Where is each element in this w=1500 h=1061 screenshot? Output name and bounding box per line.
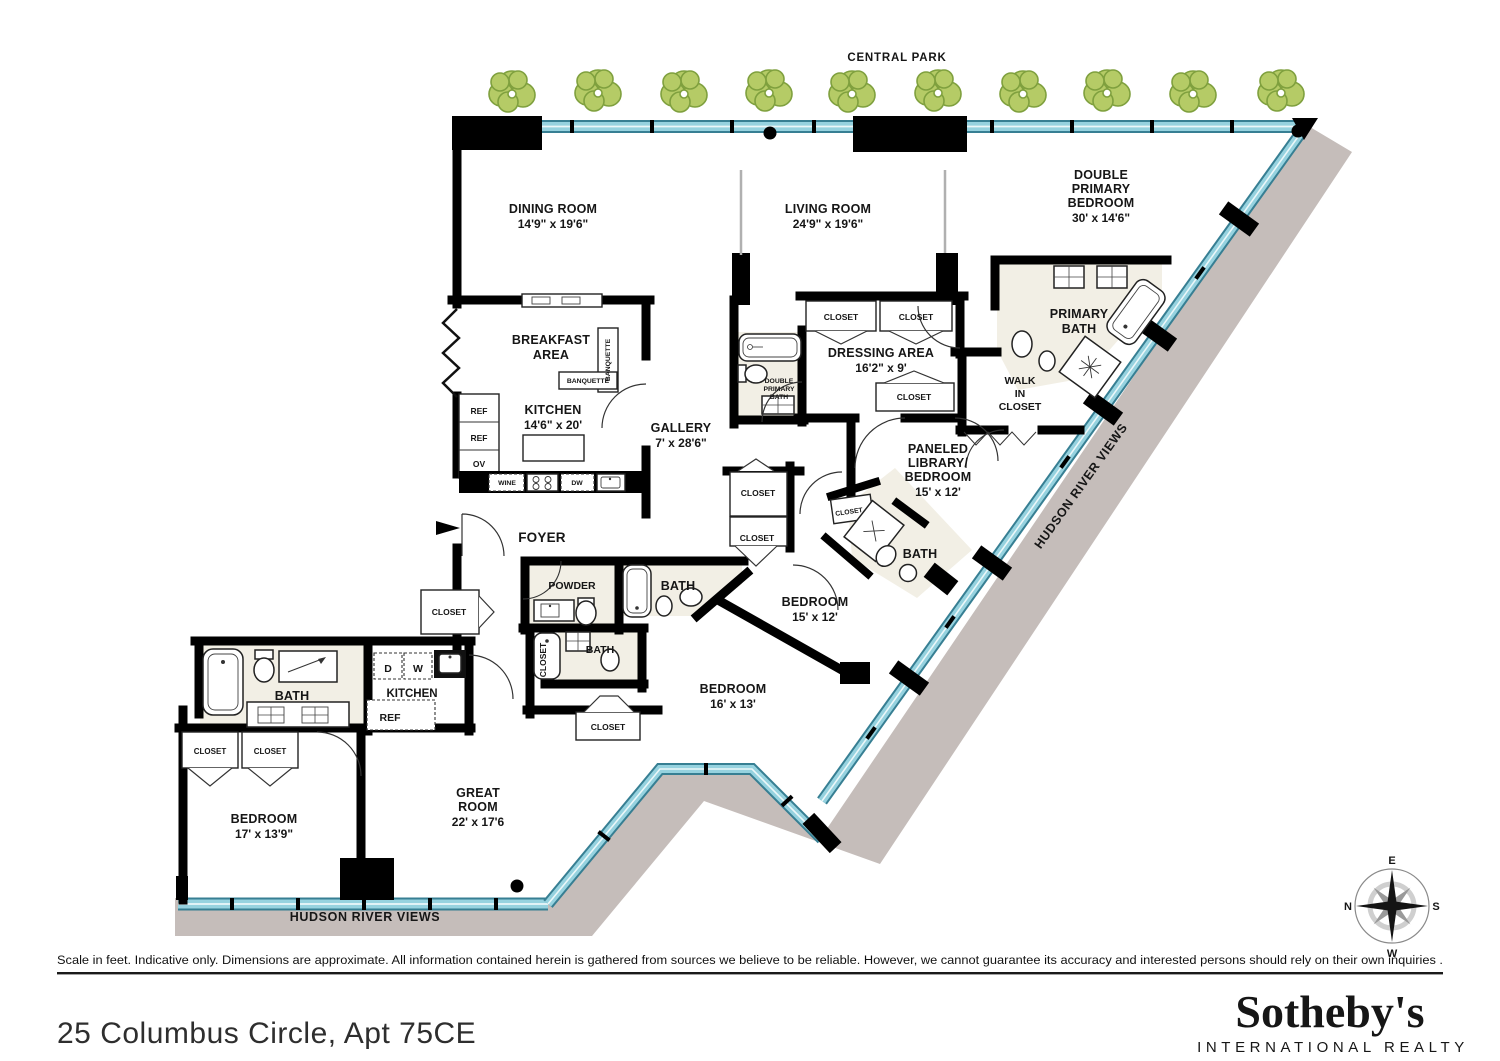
tree-icon [489,71,535,112]
console-icon [522,294,602,307]
label-bedroom-16-dims: 16' x 13' [710,697,756,711]
tree-icon [915,70,961,111]
label-banquette: BANQUETTE [567,378,610,385]
tree-icon [661,71,707,112]
label-gallery: GALLERY [651,421,712,435]
label-primary-bath: BATH [1062,322,1097,336]
door-arc [462,514,504,556]
tree-icon [1170,71,1216,112]
tree-row [489,70,1304,112]
label-walk-in-closet: CLOSET [999,401,1042,413]
bidet-icon [1039,351,1055,371]
brand-subtitle: INTERNATIONAL REALTY [1197,1039,1469,1056]
refrigerator-box [367,700,435,730]
label-closet: CLOSET [741,488,776,498]
label-banquette: BANQUETTE [605,338,612,381]
label-closet: CLOSET [254,747,287,756]
label-dressing-dims: 16'2" x 9' [855,361,907,375]
sink-icon [434,650,466,678]
label-closet: CLOSET [897,392,932,402]
label-bath: BATH [661,579,696,593]
label-central-park: CENTRAL PARK [847,52,946,64]
label-kitchen-dims: 14'6" x 20' [524,418,582,432]
door-arc [855,418,905,468]
label-bedroom-17-dims: 17' x 13'9" [235,827,293,841]
closet-door [738,459,774,471]
compass-s: S [1432,901,1439,913]
label-closet: CLOSET [591,722,626,732]
label-dining-room: DINING ROOM [509,202,597,216]
label-living-dims: 24'9" x 19'6" [793,217,863,231]
column-dot [764,127,777,140]
label-breakfast-area: AREA [533,348,569,362]
door-arc [469,655,513,699]
label-bedroom-15: BEDROOM [782,595,849,609]
tree-icon [829,71,875,112]
column-dot [511,880,524,893]
kitchen-counter [459,471,649,493]
label-closet: CLOSET [740,533,775,543]
tree-icon [575,70,621,111]
toilet-icon [738,365,767,383]
toilet-icon [576,598,596,625]
compass-n: N [1344,901,1352,913]
bathtub-icon [623,565,651,617]
label-dining-dims: 14'9" x 19'6" [518,217,588,231]
label-closet: CLOSET [432,607,467,617]
kitchen-island [523,435,584,461]
label-powder: POWDER [548,580,596,592]
column-dot [1292,125,1305,138]
disclaimer-text: Scale in feet. Indicative only. Dimensio… [57,953,1443,967]
label-walk-in-closet: WALK [1005,375,1036,387]
label-walk-in-closet: IN [1015,388,1026,400]
label-wine: WINE [498,480,516,487]
label-double-primary-bath: DOUBLE [765,378,794,385]
label-great-room: GREAT [456,786,500,800]
label-paneled-library-dims: 15' x 12' [915,485,961,499]
label-great-room-dims: 22' x 17'6 [452,815,505,829]
label-w: W [413,663,423,675]
closet-door [248,768,292,786]
label-bath: BATH [903,547,938,561]
closet-door [815,331,867,344]
label-foyer: FOYER [518,530,566,545]
label-primary-bath: PRIMARY [1050,307,1109,321]
closet-door [188,768,232,786]
sink-icon [900,565,917,582]
label-bath: BATH [275,689,310,703]
label-dw: DW [571,480,583,487]
label-double-primary-bedroom: DOUBLE [1074,168,1128,182]
brand-logo: Sotheby's INTERNATIONAL REALTY [1197,986,1469,1056]
door-arc [317,732,361,776]
label-double-primary-bedroom: PRIMARY [1072,182,1131,196]
label-great-room: ROOM [458,800,498,814]
tree-icon [1000,71,1046,112]
brand-name: Sotheby's [1235,986,1424,1037]
label-closet: CLOSET [194,747,227,756]
label-paneled-library: BEDROOM [905,470,972,484]
label-dressing-area: DRESSING AREA [828,346,934,360]
label-gallery-dims: 7' x 28'6" [655,436,706,450]
compass-icon: E S W N [1344,855,1440,960]
label-hudson-river-views: HUDSON RIVER VIEWS [290,910,440,924]
label-bath: BATH [586,644,614,656]
label-bedroom-17: BEDROOM [231,812,298,826]
label-bedroom-15-dims: 15' x 12' [792,610,838,624]
entry-arrow-icon [436,521,460,535]
footer: Scale in feet. Indicative only. Dimensio… [57,953,1469,1056]
label-paneled-library: PANELED [908,442,968,456]
page-title: 25 Columbus Circle, Apt 75CE [57,1017,476,1050]
label-closet: CLOSET [899,312,934,322]
vanity-sink [534,600,574,621]
double-vanity [247,702,349,727]
label-kitchen: KITCHEN [525,403,582,417]
label-breakfast-area: BREAKFAST [512,333,590,347]
closet-door [584,696,634,712]
bathtub-icon [739,334,801,361]
label-paneled-library: LIBRARY/ [908,456,968,470]
shower-icon [279,651,337,682]
label-ref: REF [471,406,488,416]
label-bedroom-16: BEDROOM [700,682,767,696]
label-ref: REF [380,712,402,724]
label-ref: REF [471,433,488,443]
label-double-primary-bedroom-dims: 30' x 14'6" [1072,211,1130,225]
tree-icon [746,70,792,111]
bathtub-icon [203,649,243,715]
toilet-icon [656,596,672,616]
floor-plan: CENTRAL PARK DINING ROOM 14'9" x 19'6" L… [0,0,1500,1061]
compass-e: E [1388,855,1395,867]
closet-door [889,331,943,344]
tree-icon [1258,70,1304,111]
label-d: D [384,663,392,675]
toilet-icon [254,650,274,682]
label-double-primary-bath: PRIMARY [763,386,795,393]
label-closet: CLOSET [824,312,859,322]
tree-icon [1084,70,1130,111]
label-closet: CLOSET [538,642,548,677]
sink-icon [597,474,625,491]
floor-plan-page: CENTRAL PARK DINING ROOM 14'9" x 19'6" L… [0,0,1500,1061]
label-kitchen-2: KITCHEN [386,688,437,700]
bay-window-zigzag [443,309,459,397]
label-double-primary-bedroom: BEDROOM [1068,196,1135,210]
footer-divider [57,972,1443,974]
label-living-room: LIVING ROOM [785,202,871,216]
label-double-primary-bath: BATH [770,394,788,401]
label-ov: OV [473,459,486,469]
closet-door [479,596,494,628]
toilet-icon [1012,331,1032,357]
